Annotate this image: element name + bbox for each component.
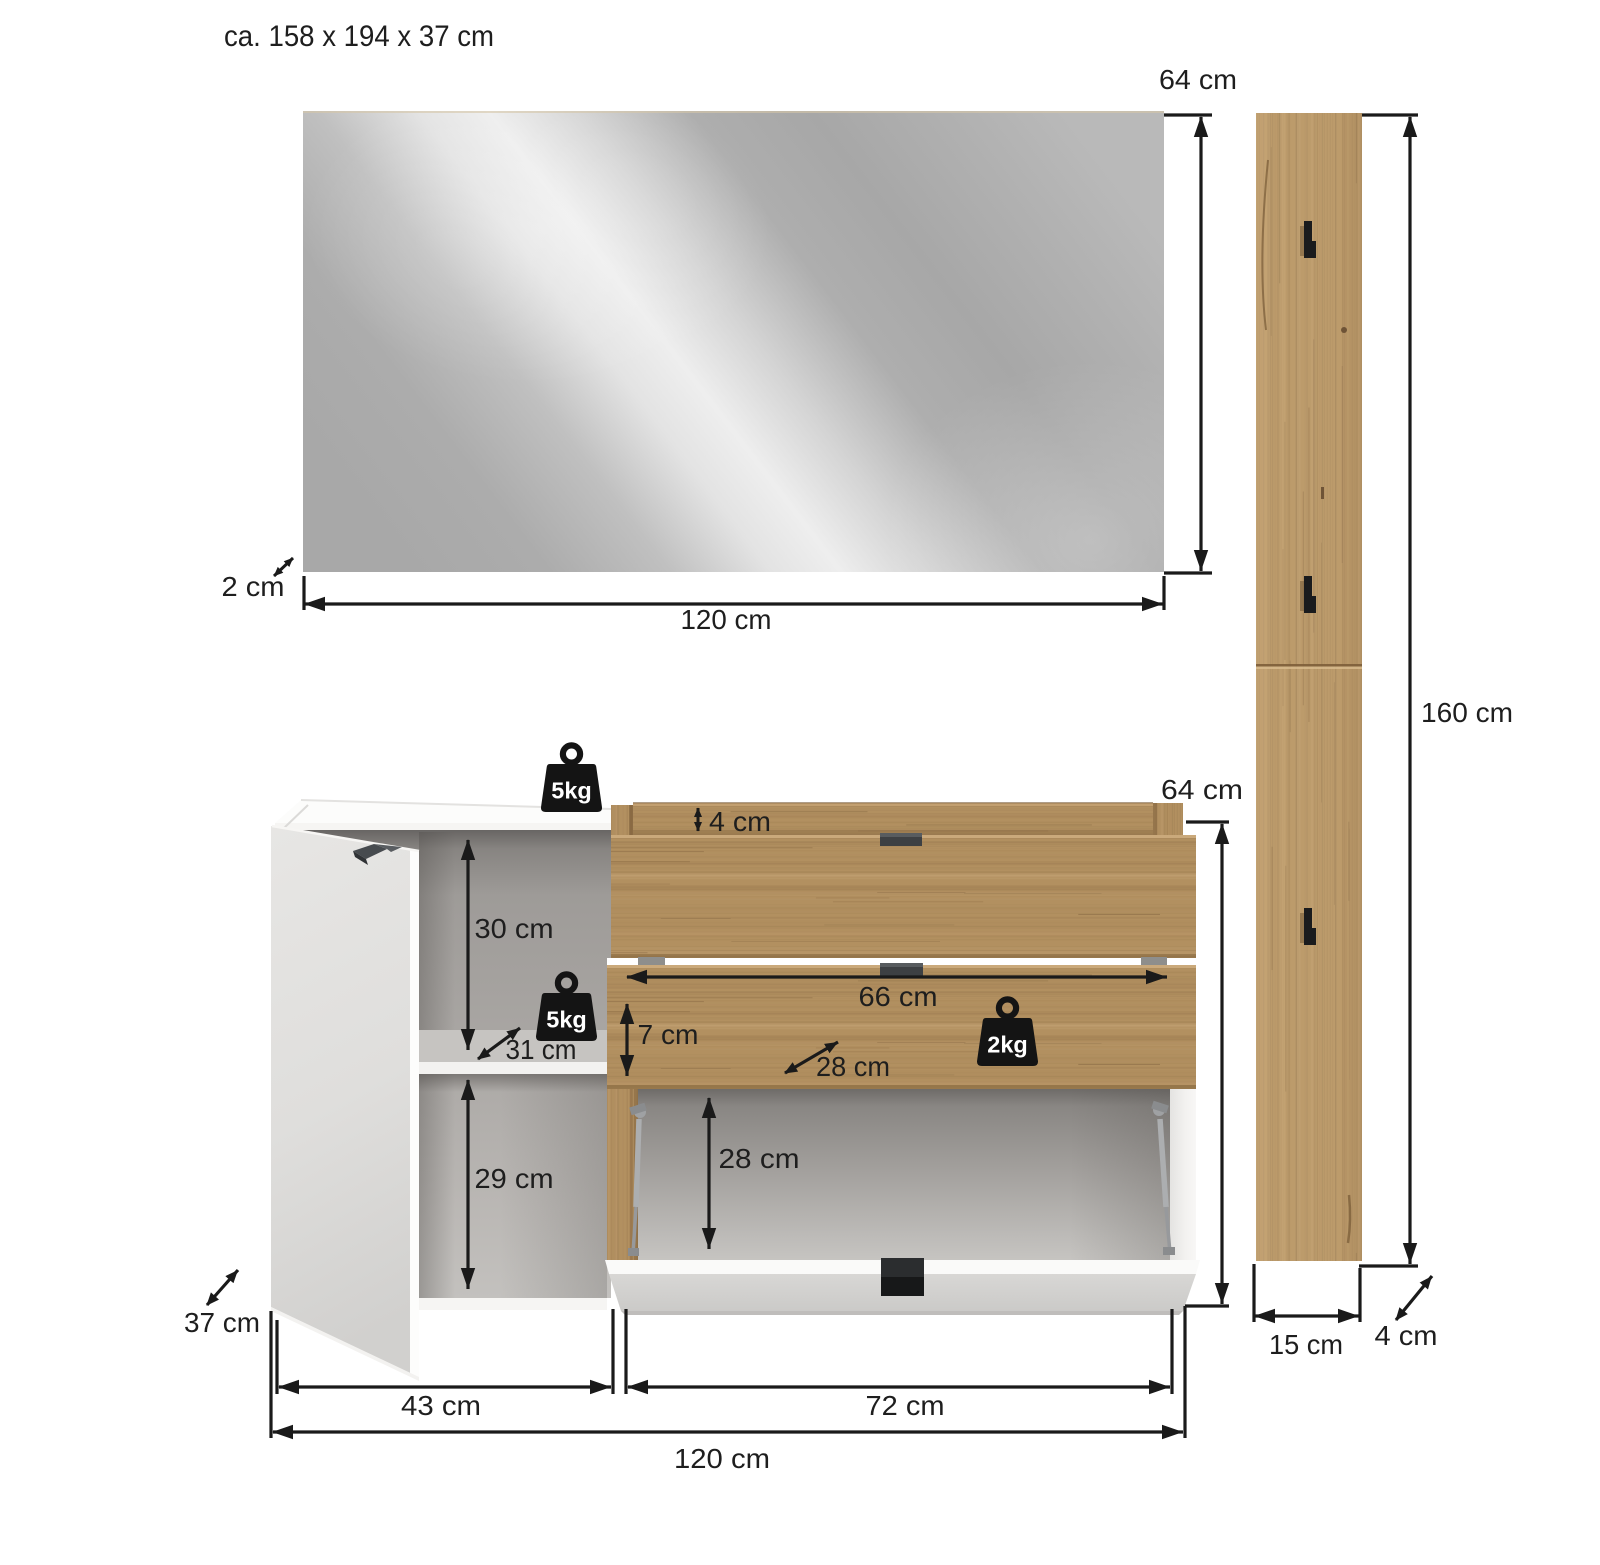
svg-text:31 cm: 31 cm (506, 1034, 577, 1065)
svg-text:2 cm: 2 cm (222, 571, 285, 602)
svg-text:4 cm: 4 cm (709, 806, 771, 837)
svg-text:2kg: 2kg (987, 1032, 1028, 1058)
svg-text:5kg: 5kg (546, 1007, 587, 1033)
svg-text:7 cm: 7 cm (638, 1019, 699, 1050)
svg-text:28 cm: 28 cm (816, 1051, 890, 1082)
svg-text:29 cm: 29 cm (475, 1163, 554, 1194)
svg-text:5kg: 5kg (551, 778, 592, 804)
svg-text:28 cm: 28 cm (719, 1143, 800, 1174)
svg-text:15 cm: 15 cm (1269, 1329, 1343, 1360)
svg-text:66 cm: 66 cm (859, 981, 938, 1012)
svg-text:72 cm: 72 cm (866, 1390, 945, 1421)
svg-text:37 cm: 37 cm (184, 1307, 260, 1338)
svg-text:120 cm: 120 cm (674, 1443, 770, 1474)
svg-text:4 cm: 4 cm (1375, 1320, 1438, 1351)
svg-text:120 cm: 120 cm (681, 604, 772, 635)
svg-text:ca. 158 x 194 x 37 cm: ca. 158 x 194 x 37 cm (224, 20, 494, 53)
svg-text:43 cm: 43 cm (401, 1390, 481, 1421)
svg-text:160 cm: 160 cm (1421, 697, 1513, 728)
svg-text:64 cm: 64 cm (1159, 64, 1237, 95)
svg-text:30 cm: 30 cm (475, 913, 554, 944)
svg-text:64 cm: 64 cm (1161, 774, 1243, 805)
